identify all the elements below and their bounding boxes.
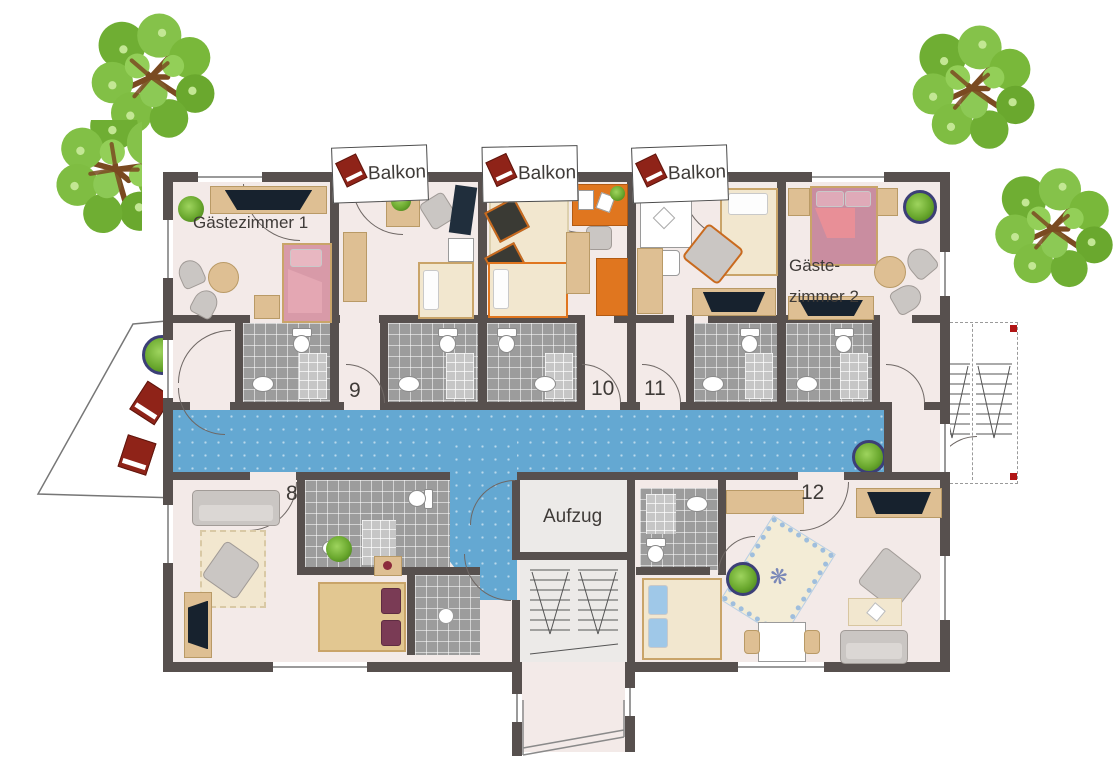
wall bbox=[912, 315, 940, 323]
room-number-12: 12 bbox=[801, 481, 824, 505]
corridor bbox=[173, 410, 888, 472]
toilet-icon bbox=[834, 328, 852, 352]
stair-marker bbox=[1010, 473, 1017, 480]
shower-area bbox=[840, 353, 868, 399]
balcony-chair-icon bbox=[485, 152, 517, 186]
sink-icon bbox=[252, 376, 274, 392]
sink-icon bbox=[534, 376, 556, 392]
wall bbox=[627, 182, 636, 410]
toilet-icon bbox=[292, 328, 310, 352]
chair bbox=[744, 630, 760, 654]
plant-icon bbox=[726, 562, 760, 596]
wall bbox=[884, 402, 892, 480]
balcony-1: Balkon bbox=[331, 144, 429, 203]
tree-icon bbox=[903, 20, 1040, 157]
wall bbox=[620, 402, 640, 410]
balcony-label: Balkon bbox=[668, 161, 727, 185]
wall bbox=[235, 315, 243, 410]
wardrobe bbox=[343, 232, 367, 302]
double-bed-icon bbox=[642, 578, 722, 660]
tv-console bbox=[856, 488, 942, 518]
balcony-2: Balkon bbox=[482, 145, 579, 203]
toilet-icon bbox=[740, 328, 758, 352]
wall bbox=[627, 480, 635, 662]
balcony-3: Balkon bbox=[631, 144, 729, 203]
shelf bbox=[726, 490, 804, 514]
bench bbox=[876, 188, 898, 216]
window bbox=[163, 220, 173, 278]
tree-icon bbox=[986, 163, 1116, 295]
elevator-label: Aufzug bbox=[543, 506, 602, 528]
wall bbox=[297, 480, 305, 575]
shower-area bbox=[446, 353, 474, 399]
floor-plan: ❋ Balkon Balkon Balkon Gästezimmer 1 Gäs… bbox=[0, 0, 1116, 768]
wall bbox=[384, 402, 580, 410]
window bbox=[812, 172, 884, 182]
balcony-label: Balkon bbox=[368, 161, 427, 185]
bed-icon bbox=[418, 262, 474, 319]
bed-icon bbox=[488, 262, 568, 318]
wall bbox=[924, 402, 940, 410]
room-number-9: 9 bbox=[349, 379, 361, 403]
wall bbox=[614, 315, 674, 323]
wardrobe bbox=[566, 232, 590, 294]
balcony-label: Balkon bbox=[518, 162, 576, 185]
round-table bbox=[208, 262, 239, 293]
double-bed-icon bbox=[318, 582, 406, 652]
room-number-11: 11 bbox=[644, 377, 666, 401]
wall bbox=[512, 600, 520, 662]
wall bbox=[680, 402, 884, 410]
toilet-icon bbox=[646, 538, 664, 562]
plant-icon bbox=[610, 186, 625, 201]
room-number-8: 8 bbox=[286, 482, 298, 506]
window bbox=[738, 662, 824, 672]
wall bbox=[686, 315, 694, 410]
wall bbox=[636, 567, 710, 575]
window bbox=[940, 252, 950, 296]
window bbox=[625, 688, 635, 716]
tv-console bbox=[692, 288, 776, 316]
wall bbox=[872, 315, 880, 410]
balcony-chair-icon bbox=[335, 153, 368, 187]
wall bbox=[844, 472, 940, 480]
rug-icon bbox=[848, 598, 902, 626]
room-label-guest-1: Gästezimmer 1 bbox=[193, 213, 308, 233]
sofa-icon bbox=[840, 630, 908, 664]
tv-console bbox=[184, 592, 212, 658]
window bbox=[273, 662, 367, 672]
tv-console bbox=[210, 186, 327, 214]
chair bbox=[804, 630, 820, 654]
balcony-chair-icon bbox=[635, 153, 668, 187]
door-opening bbox=[163, 340, 173, 398]
bed-icon bbox=[282, 243, 332, 323]
nightstand bbox=[374, 556, 402, 576]
round-table bbox=[874, 256, 906, 288]
shower-area bbox=[646, 494, 676, 534]
wardrobe bbox=[637, 248, 663, 314]
toilet-icon bbox=[497, 328, 515, 352]
sink-icon bbox=[686, 496, 708, 512]
window bbox=[198, 172, 262, 182]
room-number-10: 10 bbox=[591, 377, 614, 401]
wall bbox=[230, 402, 344, 410]
shower-drain bbox=[438, 608, 454, 624]
door-opening bbox=[940, 424, 950, 472]
cabinet bbox=[596, 258, 628, 316]
lamp bbox=[448, 238, 474, 262]
sink-icon bbox=[796, 376, 818, 392]
shower-area bbox=[299, 353, 327, 399]
window bbox=[940, 556, 950, 620]
plant-icon bbox=[903, 190, 937, 224]
wall bbox=[512, 552, 635, 560]
wall bbox=[517, 472, 798, 480]
plant-icon bbox=[326, 536, 352, 562]
dining-table bbox=[758, 622, 806, 662]
shower-area bbox=[745, 353, 773, 399]
rug-medallion-icon: ❋ bbox=[763, 561, 792, 593]
wall bbox=[407, 575, 415, 655]
bench bbox=[788, 188, 810, 216]
window bbox=[163, 505, 173, 563]
opening bbox=[522, 662, 625, 672]
sofa-icon bbox=[192, 490, 280, 526]
nightstand bbox=[254, 295, 280, 319]
plant-icon bbox=[852, 440, 886, 474]
sink-icon bbox=[398, 376, 420, 392]
room-label-guest-2: Gäste- zimmer 2 bbox=[789, 250, 859, 313]
toilet-icon bbox=[438, 328, 456, 352]
window bbox=[512, 694, 522, 722]
stairs-icon bbox=[526, 566, 622, 658]
toilet-icon bbox=[409, 489, 433, 507]
wall bbox=[173, 472, 250, 480]
wall bbox=[296, 472, 450, 480]
tree-icon bbox=[2, 120, 142, 260]
sink-icon bbox=[702, 376, 724, 392]
papers bbox=[578, 190, 594, 210]
stair-marker bbox=[1010, 325, 1017, 332]
wall bbox=[777, 182, 786, 410]
landing-edge bbox=[522, 700, 625, 756]
